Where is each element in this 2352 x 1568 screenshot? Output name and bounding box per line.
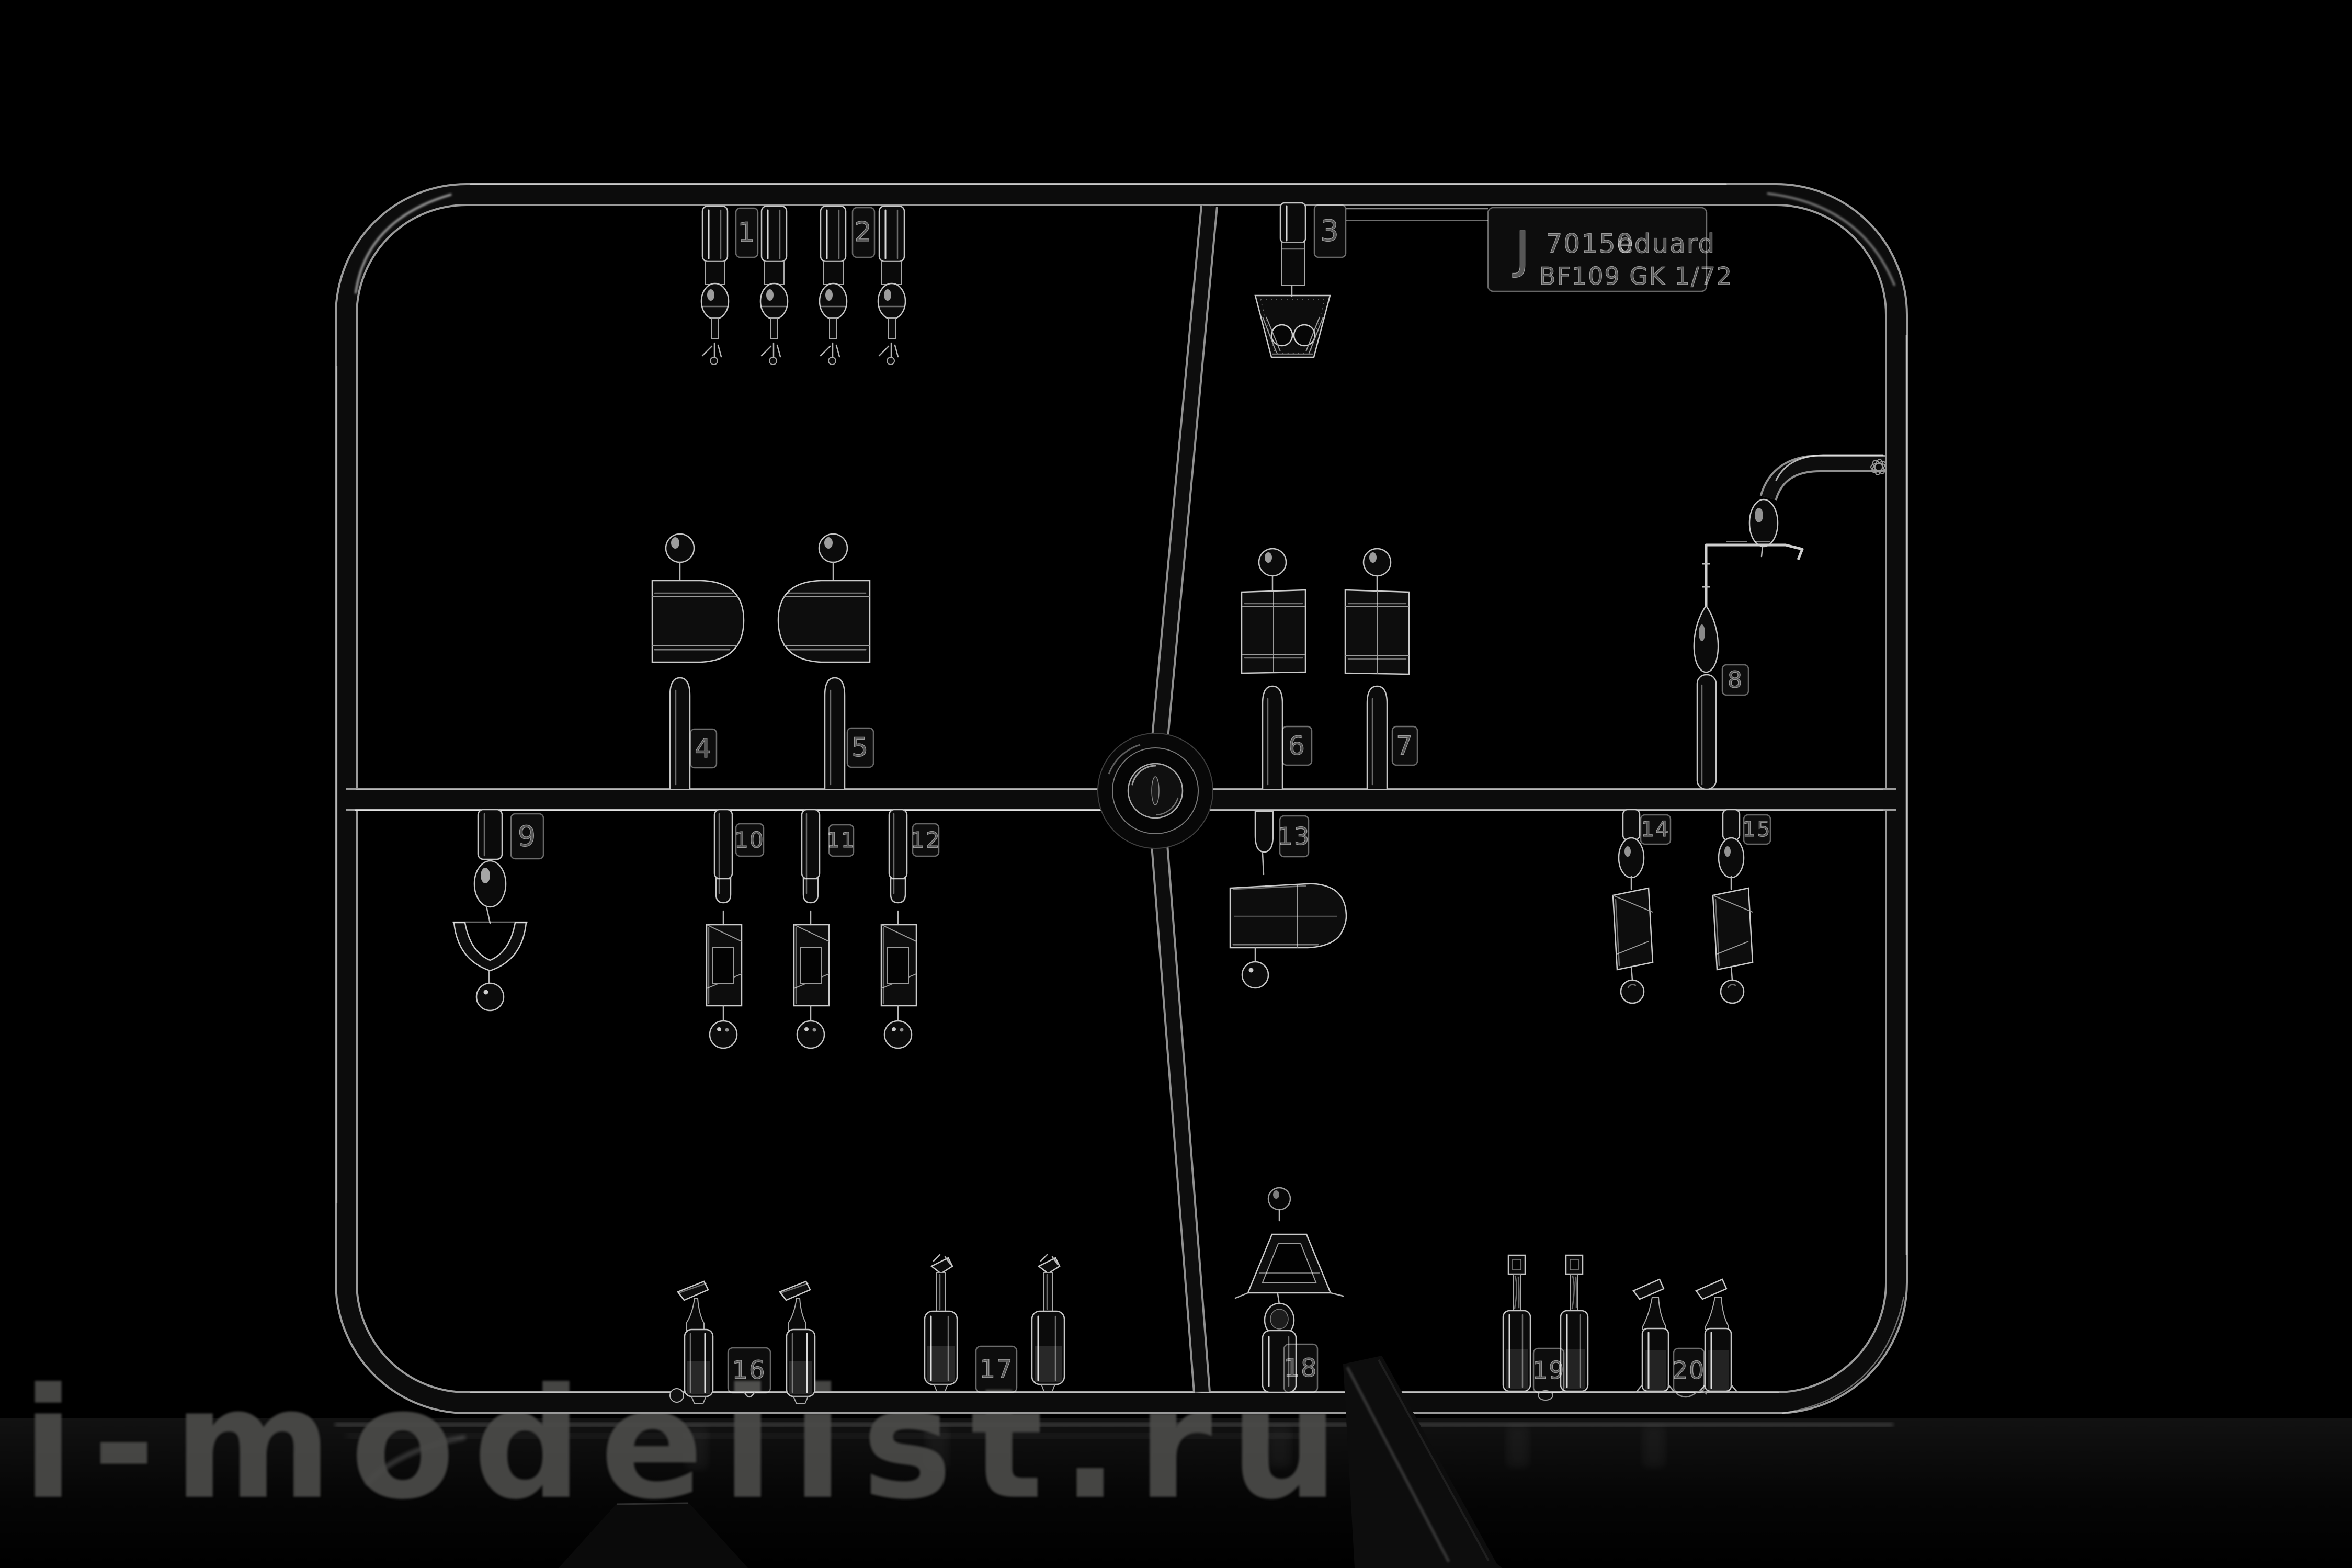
label-runner-letter: J: [1513, 221, 1531, 279]
part-tag-17: 17: [976, 1346, 1017, 1392]
part-tag-11: 11: [827, 825, 856, 856]
center-injection-disc: [1098, 733, 1213, 848]
part-tag-16: 16: [728, 1348, 770, 1397]
label-brand: eduard: [1617, 229, 1715, 259]
photo-clear-sprue: i-modelist.ru: [0, 0, 2352, 1568]
part-tag-9: 9: [511, 814, 543, 859]
sprue-photo-svg: i-modelist.ru: [0, 0, 2352, 1568]
svg-text:13: 13: [1278, 822, 1311, 850]
svg-text:19: 19: [1532, 1356, 1565, 1384]
part-tag-20: 20: [1673, 1348, 1706, 1392]
svg-text:17: 17: [979, 1355, 1013, 1384]
svg-text:16: 16: [732, 1356, 766, 1385]
part-tag-12: 12: [911, 824, 940, 856]
svg-text:20: 20: [1673, 1356, 1706, 1384]
svg-text:8: 8: [1728, 667, 1743, 694]
part-tag-2: 2: [853, 208, 874, 257]
part-tag-13: 13: [1278, 816, 1311, 857]
svg-text:7: 7: [1396, 731, 1414, 761]
part-tag-10: 10: [734, 824, 764, 856]
part-tag-6: 6: [1282, 726, 1312, 765]
svg-text:4: 4: [695, 733, 712, 764]
svg-text:2: 2: [854, 217, 872, 248]
svg-text:12: 12: [911, 827, 940, 853]
svg-text:14: 14: [1641, 817, 1670, 842]
part-tag-7: 7: [1392, 726, 1417, 765]
label-plate: J 70150 eduard BF109 GK 1/72: [1488, 208, 1733, 291]
svg-text:9: 9: [518, 820, 537, 853]
part-tag-14: 14: [1641, 815, 1671, 844]
part-tag-5: 5: [847, 728, 873, 767]
svg-text:5: 5: [851, 732, 869, 763]
svg-text:3: 3: [1320, 214, 1340, 248]
label-model-scale: BF109 GK 1/72: [1539, 262, 1733, 290]
part-tag-4: 4: [690, 729, 717, 768]
part-tag-18: 18: [1283, 1344, 1317, 1392]
part-tag-15: 15: [1743, 815, 1771, 844]
svg-text:6: 6: [1288, 731, 1306, 761]
part-tag-3: 3: [1314, 205, 1346, 257]
svg-text:10: 10: [734, 827, 764, 853]
part-tag-1: 1: [736, 208, 758, 257]
part-tag-8: 8: [1722, 665, 1748, 695]
svg-text:18: 18: [1283, 1354, 1317, 1383]
svg-text:11: 11: [827, 828, 856, 853]
svg-text:15: 15: [1743, 817, 1771, 842]
part-tag-19: 19: [1532, 1348, 1565, 1392]
svg-text:1: 1: [737, 217, 756, 248]
